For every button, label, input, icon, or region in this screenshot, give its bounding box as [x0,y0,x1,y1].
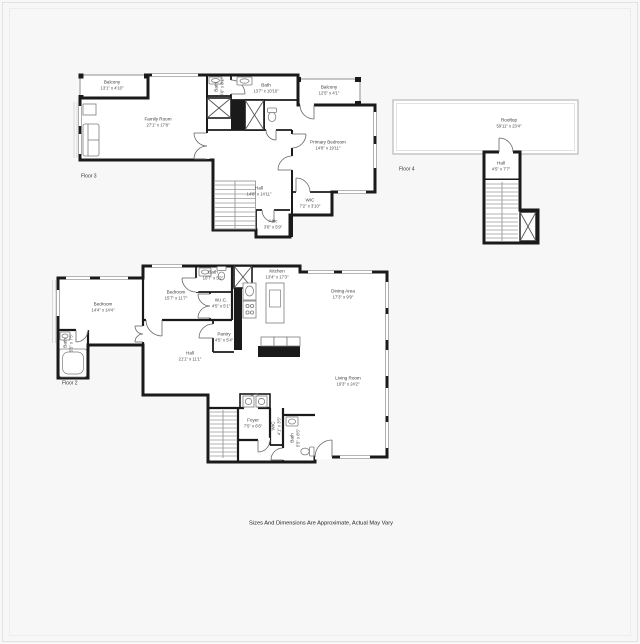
elevator-shaft-icon [520,212,536,241]
bathtub-fixture [60,349,87,377]
table-fixture [83,104,96,115]
shaft-wall [231,100,245,130]
kitchen-counter [261,337,300,346]
sink-fixture [286,417,298,426]
sink-fixture [199,268,211,276]
stove-fixture [243,301,256,318]
kitchen-wall [258,346,300,357]
floorplan-page: Balcony 13'1" x 4'10" Family Room 27'1" … [0,0,640,644]
toilet-fixture [268,108,277,122]
kitchen-counter [243,283,256,300]
sink-fixture [60,332,70,340]
sink-fixture [209,77,222,84]
rooftop-parapet [393,100,578,154]
shaft-wall [234,288,242,350]
floorplan-drawing [0,0,640,644]
balcony-right-outline [298,79,360,106]
kitchen-island [266,283,284,323]
balcony-left-outline [80,75,148,99]
sofa-fixture [83,124,99,156]
sink-fixture [237,77,252,85]
toilet-fixture [301,447,314,456]
elevator-shaft-icon [207,98,231,118]
elevator-shaft-icon [245,100,264,130]
floor4-hall-room [484,152,520,180]
